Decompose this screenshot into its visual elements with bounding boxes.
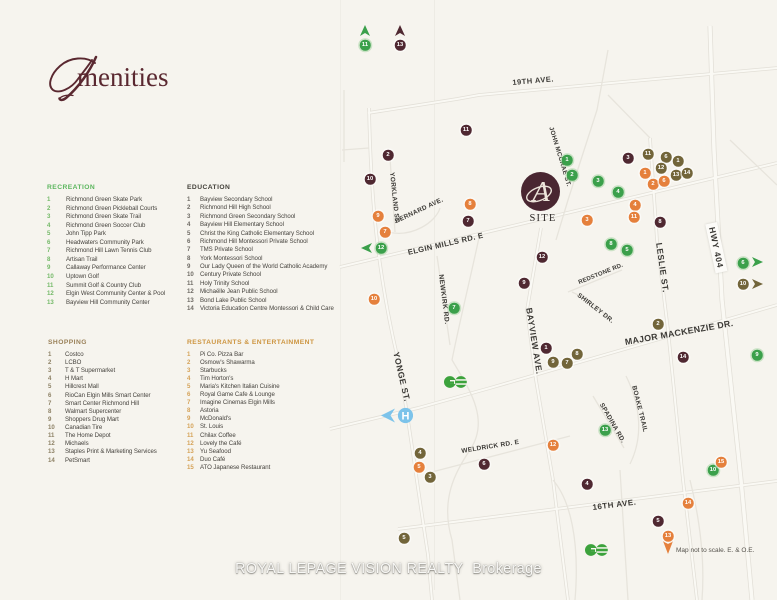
svg-text:A: A [530, 177, 550, 208]
svg-text:H: H [402, 410, 410, 422]
